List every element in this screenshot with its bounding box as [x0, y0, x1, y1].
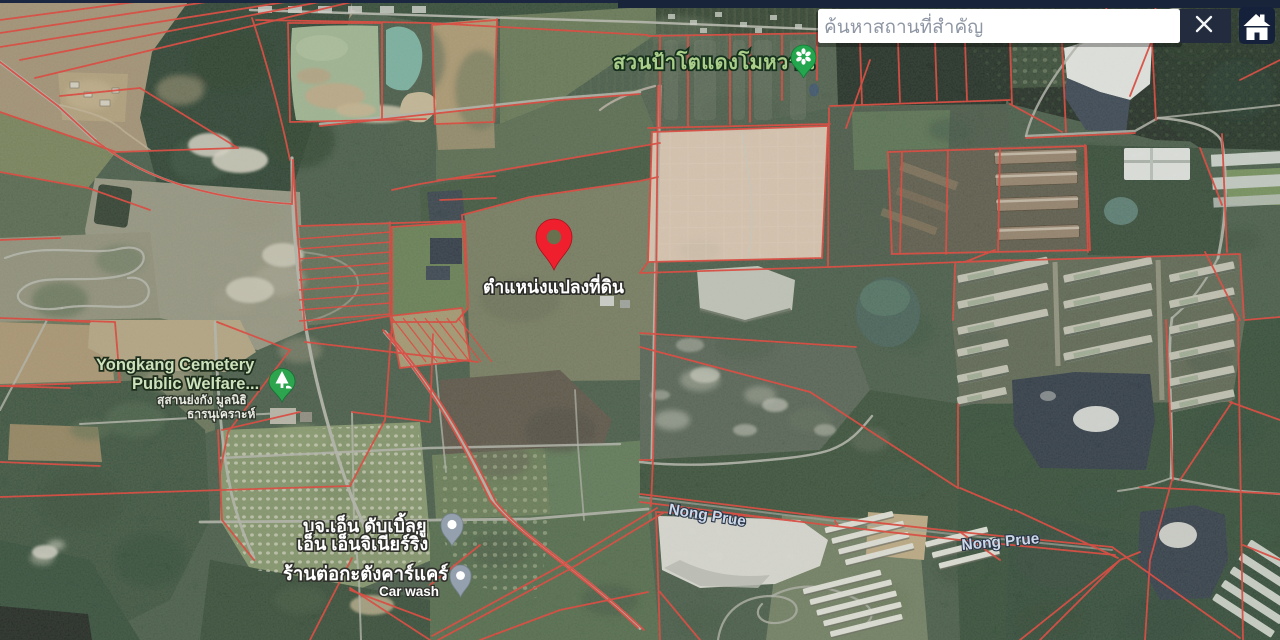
svg-text:สวนป้าโตแดงโมหวาน: สวนป้าโตแดงโมหวาน	[613, 50, 815, 74]
svg-text:ร้านต่อกะตังคาร์แคร์: ร้านต่อกะตังคาร์แคร์	[283, 563, 448, 584]
svg-text:Yongkang Cemetery: Yongkang Cemetery	[96, 356, 255, 374]
svg-text:ตำแหน่งแปลงที่ดิน: ตำแหน่งแปลงที่ดิน	[483, 274, 625, 297]
svg-text:Public Welfare...: Public Welfare...	[132, 375, 259, 393]
svg-text:สุสานย่งกัง มูลนิธิ: สุสานย่งกัง มูลนิธิ	[157, 393, 247, 408]
svg-text:ธารนุเคราะห์: ธารนุเคราะห์	[187, 407, 255, 422]
svg-text:เอ็น เอ็นจิเนียร์ริ่ง: เอ็น เอ็นจิเนียร์ริ่ง	[297, 531, 428, 554]
svg-text:Car wash: Car wash	[379, 584, 439, 599]
svg-text:ค้นหาสถานที่สำคัญ: ค้นหาสถานที่สำคัญ	[824, 13, 983, 38]
